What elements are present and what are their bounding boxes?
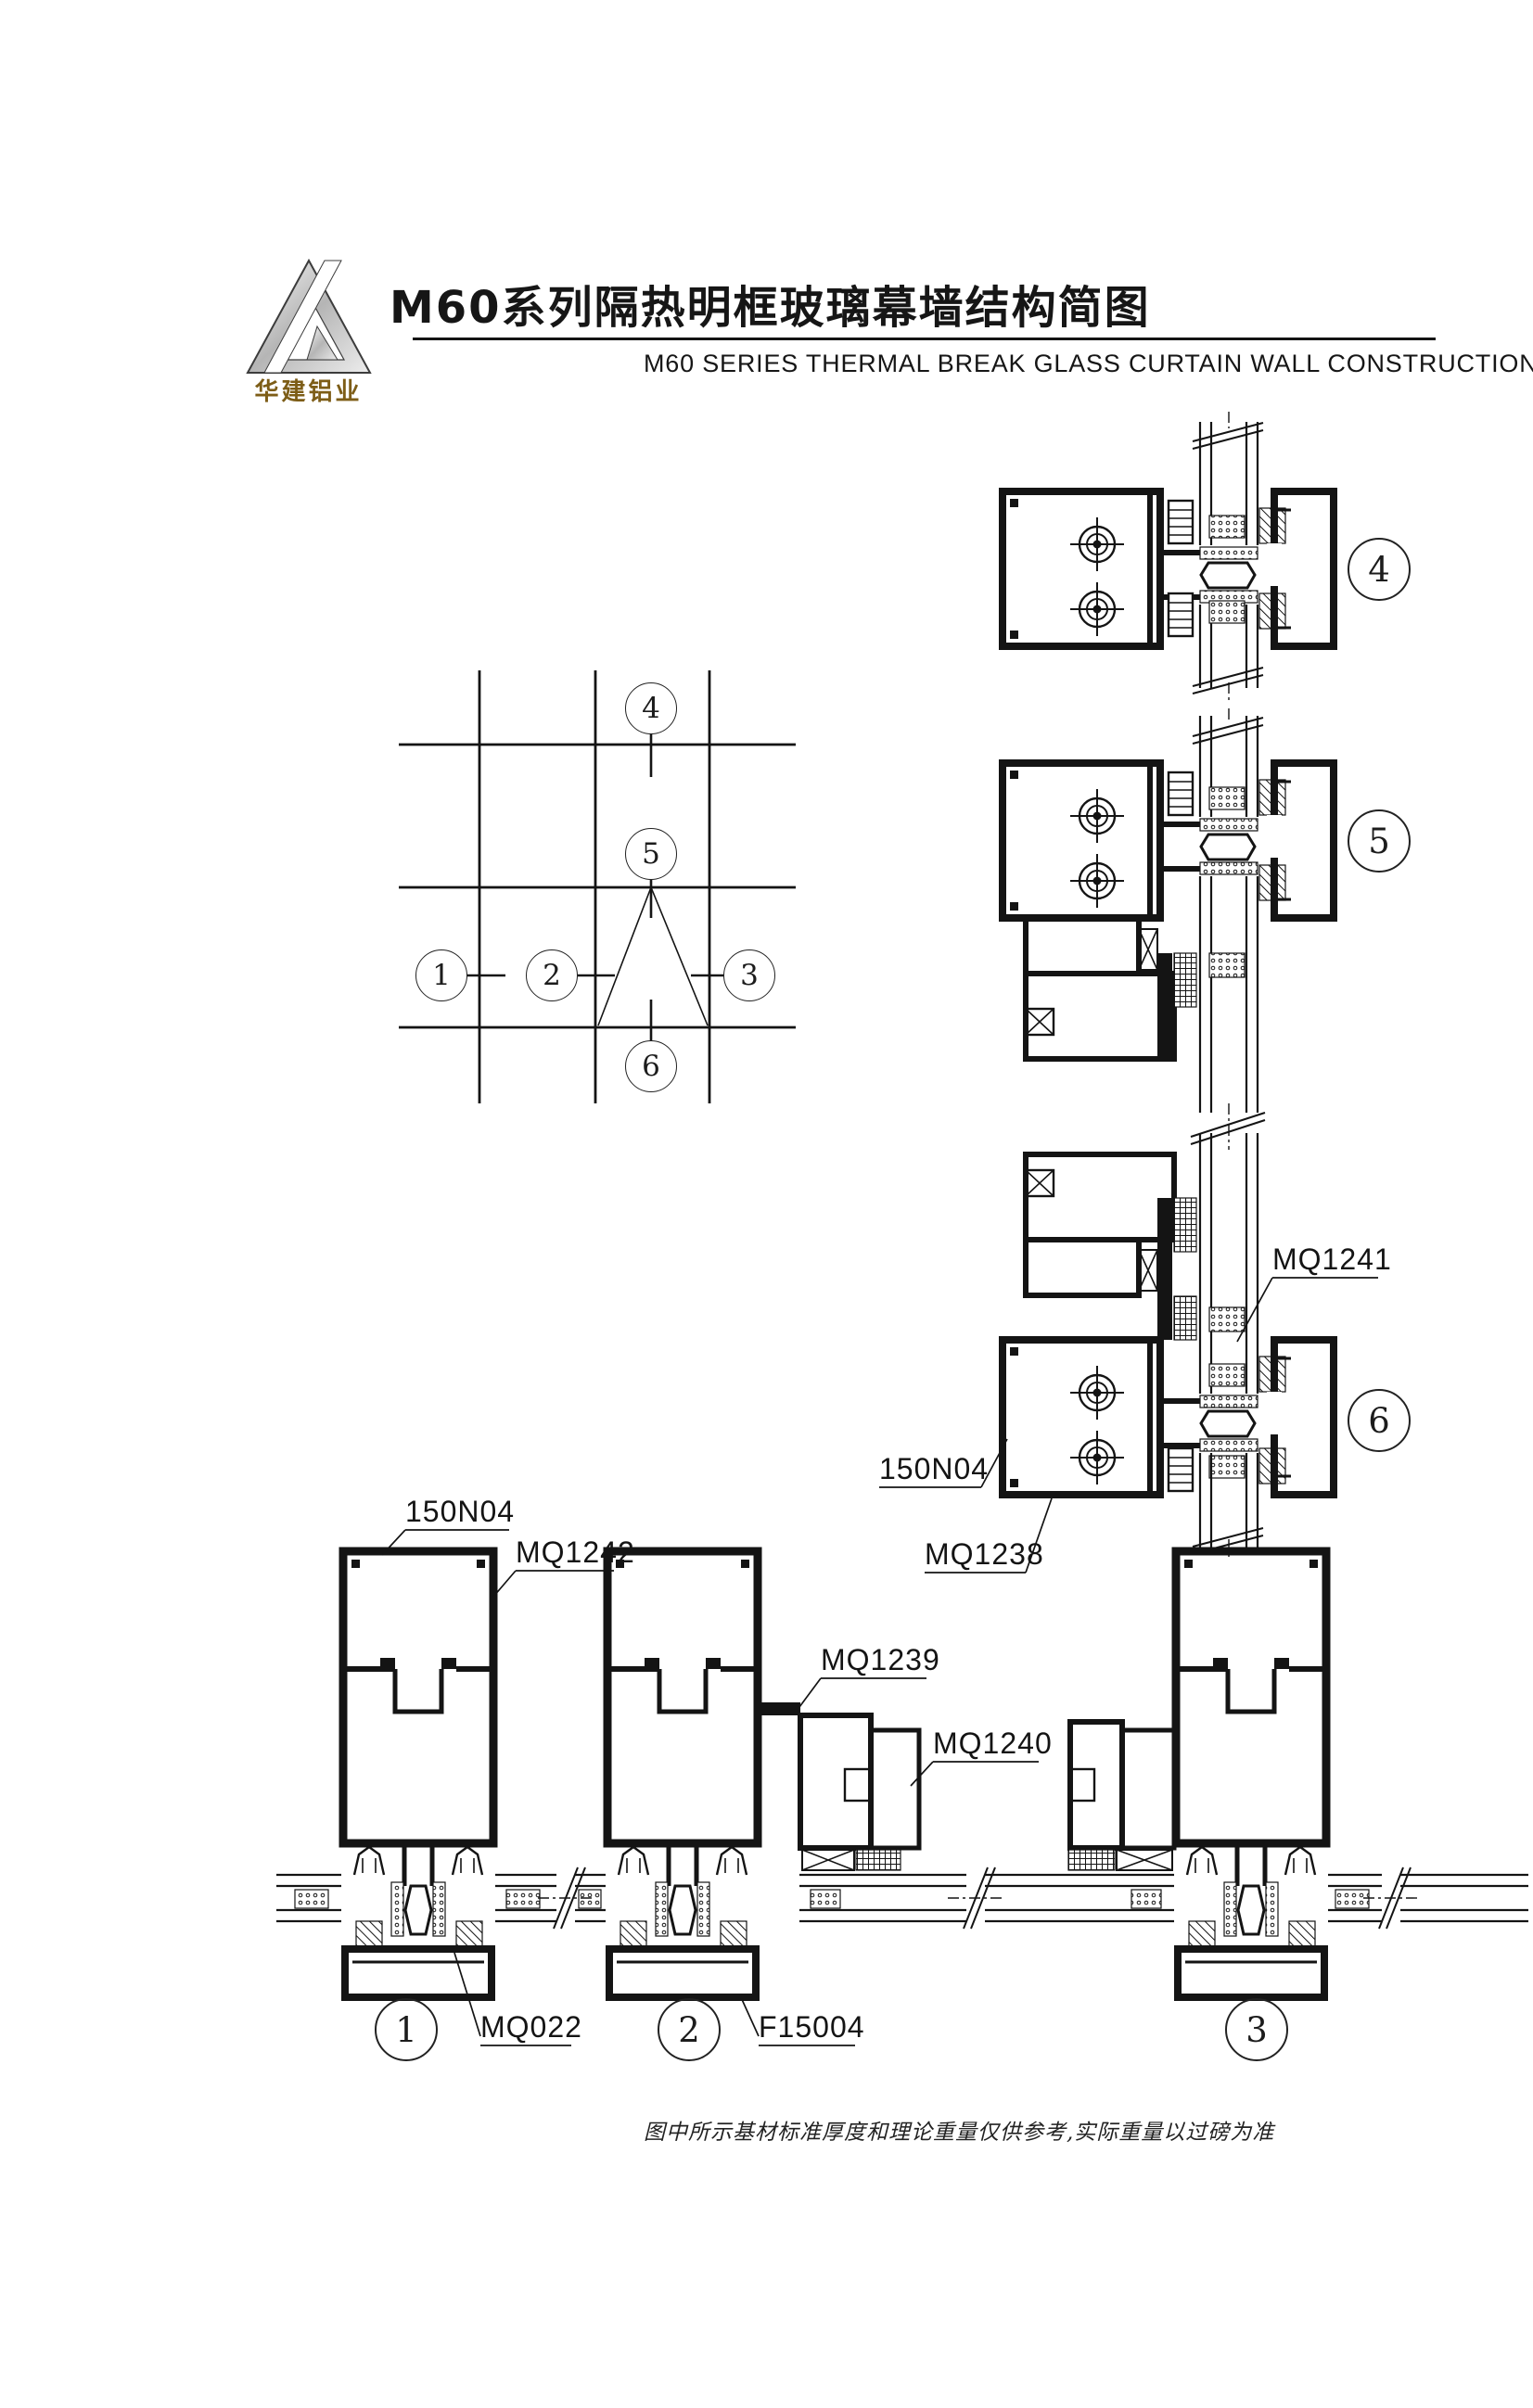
drawing-sheet: 华建铝业 M60系列隔热明框玻璃幕墙结构简图 M60 SERIES THERMA… [0, 0, 1533, 2408]
gasket [456, 1921, 482, 1949]
detail-3-drawing [1176, 1551, 1326, 1997]
glazing-clamp [1169, 1448, 1193, 1491]
glass-horizontal-band [276, 1867, 1528, 1929]
glazing-clamp [717, 1847, 747, 1875]
footnote: 图中所示基材标准厚度和理论重量仅供参考,实际重量以过磅为准 [644, 2114, 1274, 2146]
glazing-clamp [453, 1847, 482, 1875]
sill-cap [1178, 1949, 1324, 1997]
keyplan-callout-4: 4 [625, 682, 677, 734]
callout-number: 1 [432, 959, 451, 992]
thermal-break-isolator [670, 1886, 696, 1934]
thermal-break-isolator [1201, 1411, 1255, 1436]
part-label-f15004: F15004 [759, 2010, 865, 2045]
thermal-break-isolator [405, 1886, 431, 1934]
thermal-break-isolator [1201, 835, 1255, 860]
glazing-clamp [1285, 1847, 1315, 1875]
detail-2-drawing [607, 1551, 758, 1997]
detail-6-drawing [1003, 1133, 1334, 1560]
detail-callout-6: 6 [1348, 1389, 1411, 1452]
mullion-box [1003, 1340, 1160, 1495]
detail-callout-5: 5 [1348, 809, 1411, 873]
bolt-symbol [1070, 517, 1124, 571]
part-label-mq1239: MQ1239 [821, 1643, 940, 1677]
callout-number: 5 [1368, 822, 1390, 861]
callout-number: 3 [740, 959, 759, 992]
part-label-150n04-detail6: 150N04 [879, 1452, 989, 1486]
glazing-clamp [1187, 1847, 1217, 1875]
key-plan-grid [399, 670, 796, 1103]
detail-region-triangle [598, 887, 708, 1026]
part-label-mq1238: MQ1238 [925, 1537, 1044, 1572]
thermal-break-isolator [1201, 563, 1255, 588]
glass-lower [1200, 876, 1258, 1115]
vent-frame-upper [1026, 918, 1196, 1059]
glass-upper [1200, 1133, 1258, 1394]
callout-number: 6 [1368, 1401, 1390, 1441]
bolt-symbol [1070, 1431, 1124, 1484]
part-label-mq1242: MQ1242 [516, 1535, 635, 1570]
detail-callout-2: 2 [658, 1998, 721, 2061]
keyplan-callout-2: 2 [526, 949, 578, 1001]
title-divider [413, 338, 1436, 340]
gasket [1189, 1921, 1215, 1949]
callout-number: 2 [543, 959, 561, 992]
callout-number: 5 [642, 837, 660, 871]
keyplan-callout-1: 1 [415, 949, 467, 1001]
bolt-symbol [1070, 1366, 1124, 1420]
page-subtitle: M60 SERIES THERMAL BREAK GLASS CURTAIN W… [644, 350, 1533, 378]
part-label-150n04-detail1: 150N04 [405, 1495, 515, 1529]
transom-box [343, 1551, 493, 1843]
glass-break-marks [1193, 718, 1263, 744]
detail-callout-1: 1 [375, 1998, 438, 2061]
gasket [620, 1921, 646, 1949]
glazing-clamp [1169, 593, 1193, 636]
bolt-symbol [1070, 854, 1124, 908]
callout-number: 6 [642, 1050, 660, 1083]
vent-profiles-right [1068, 1722, 1174, 1870]
sill-cap [609, 1949, 756, 1997]
callout-number: 4 [1368, 550, 1390, 590]
logo-text: 华建铝业 [232, 373, 385, 407]
detail-5-drawing [1003, 708, 1334, 1115]
gasket [356, 1921, 382, 1949]
glazing-clamp [1169, 501, 1193, 543]
gasket [721, 1921, 747, 1949]
transom-box [1176, 1551, 1326, 1843]
transom-box [607, 1551, 758, 1843]
page-title: M60系列隔热明框玻璃幕墙结构简图 [390, 271, 1151, 336]
thermal-break-isolator [1238, 1886, 1264, 1934]
vent-profiles-left [758, 1702, 919, 1870]
keyplan-callout-6: 6 [625, 1040, 677, 1092]
callout-number: 3 [1246, 2010, 1268, 2050]
glass-break-mid [1191, 1103, 1265, 1150]
glazing-clamp [1169, 772, 1193, 815]
glazing-clamp [354, 1847, 384, 1875]
bolt-symbol [1070, 789, 1124, 843]
part-label-mq022: MQ022 [480, 2010, 582, 2045]
detail-callout-4: 4 [1348, 538, 1411, 601]
part-label-mq1240: MQ1240 [933, 1726, 1053, 1761]
keyplan-callout-3: 3 [723, 949, 775, 1001]
keyplan-callout-5: 5 [625, 828, 677, 880]
detail-1-drawing [343, 1551, 493, 1997]
callout-number: 4 [642, 692, 660, 725]
callout-number: 1 [395, 2010, 417, 2050]
glazing-clamp [619, 1847, 648, 1875]
mullion-box [1003, 763, 1160, 918]
part-label-mq1241: MQ1241 [1272, 1242, 1392, 1277]
gasket [1289, 1921, 1315, 1949]
sill-cap [345, 1949, 492, 1997]
mullion-box [1003, 491, 1160, 646]
detail-callout-3: 3 [1225, 1998, 1288, 2061]
bolt-symbol [1070, 582, 1124, 636]
vent-frame-lower [1026, 1154, 1196, 1340]
detail-4-drawing [1003, 412, 1334, 701]
callout-number: 2 [678, 2010, 700, 2050]
logo-triangle-icon [248, 261, 370, 373]
